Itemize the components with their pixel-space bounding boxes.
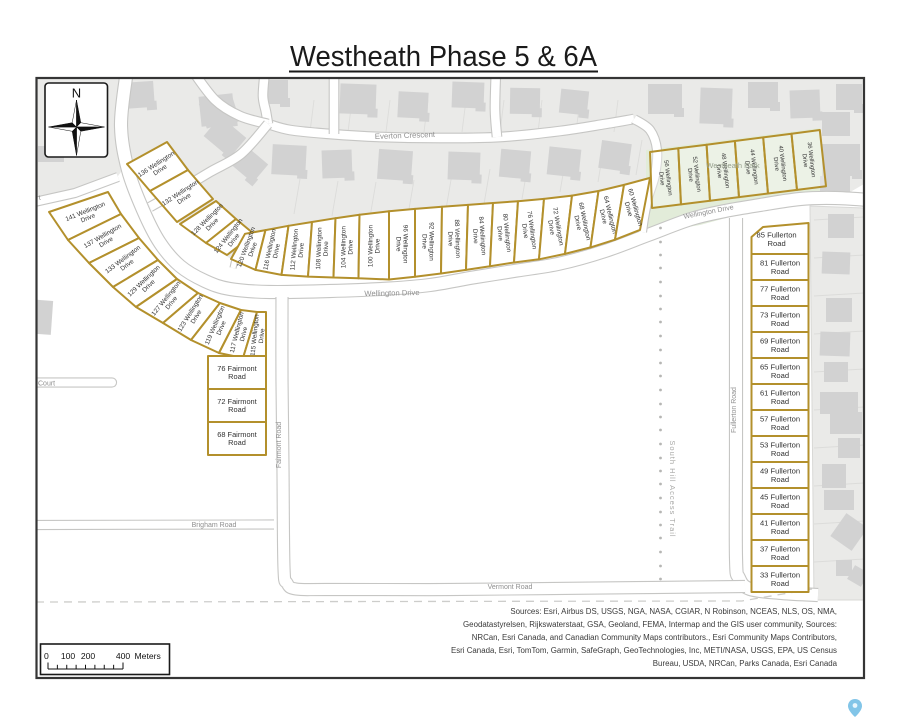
- svg-text:92 Wellington: 92 Wellington: [428, 222, 435, 261]
- svg-text:Wellington Drive: Wellington Drive: [364, 288, 419, 298]
- svg-text:Brigham Road: Brigham Road: [192, 522, 237, 529]
- svg-text:Road: Road: [771, 371, 789, 380]
- svg-text:104 Wellington: 104 Wellington: [341, 226, 348, 269]
- svg-text:Road: Road: [771, 579, 789, 588]
- svg-text:Drive: Drive: [394, 237, 401, 252]
- svg-text:Drive: Drive: [471, 229, 479, 245]
- svg-text:Road: Road: [771, 267, 789, 276]
- svg-text:Road: Road: [771, 319, 789, 328]
- svg-text:96 Wellington: 96 Wellington: [401, 225, 408, 264]
- svg-text:Sources: Esri, Airbus DS, USGS: Sources: Esri, Airbus DS, USGS, NGA, NAS…: [510, 607, 837, 616]
- svg-text:Road: Road: [771, 475, 789, 484]
- svg-text:Drive: Drive: [421, 234, 428, 249]
- svg-text:Road: Road: [771, 423, 789, 432]
- svg-text:Drive: Drive: [375, 238, 382, 253]
- svg-text:Road: Road: [771, 449, 789, 458]
- svg-text:Meters: Meters: [135, 651, 161, 661]
- svg-text:N: N: [72, 86, 81, 101]
- svg-text:Drive: Drive: [446, 231, 454, 247]
- svg-text:Road: Road: [771, 553, 789, 562]
- svg-text:Esri Canada, Esri, TomTom, Gar: Esri Canada, Esri, TomTom, Garmin, SafeG…: [451, 646, 837, 655]
- svg-text:Westheath Phase 5 & 6A: Westheath Phase 5 & 6A: [290, 41, 598, 73]
- svg-text:Road: Road: [771, 345, 789, 354]
- svg-text:Geodatastyrelsen, Rijkswaterst: Geodatastyrelsen, Rijkswaterstaat, GSA, …: [463, 620, 837, 629]
- svg-text:Bureau, USDA, NRCan, Parks Can: Bureau, USDA, NRCan, Parks Canada, Esri …: [653, 659, 838, 668]
- svg-text:Road: Road: [228, 438, 246, 447]
- svg-text:100 Wellington: 100 Wellington: [368, 224, 375, 267]
- svg-text:Road: Road: [771, 397, 789, 406]
- svg-text:South Hill Access Trail: South Hill Access Trail: [668, 440, 677, 537]
- svg-text:Road: Road: [228, 372, 246, 381]
- svg-text:Court: Court: [38, 381, 55, 388]
- svg-text:Road: Road: [228, 405, 246, 414]
- svg-text:Road: Road: [771, 501, 789, 510]
- svg-text:Vermont Road: Vermont Road: [488, 584, 533, 591]
- svg-text:400: 400: [116, 651, 131, 661]
- svg-text:Drive: Drive: [298, 242, 306, 258]
- svg-text:Drive: Drive: [323, 241, 331, 257]
- svg-text:100: 100: [61, 651, 76, 661]
- svg-text:Westheath Park: Westheath Park: [706, 161, 759, 170]
- svg-text:NRCan, Esri Canada, and Canadi: NRCan, Esri Canada, and Canadian Communi…: [472, 633, 837, 642]
- svg-text:Drive: Drive: [348, 239, 355, 254]
- svg-text:Fairmont Road: Fairmont Road: [276, 422, 283, 468]
- svg-text:Road: Road: [771, 293, 789, 302]
- svg-text:0: 0: [44, 651, 49, 661]
- svg-text:Road: Road: [771, 527, 789, 536]
- svg-text:Road: Road: [768, 239, 786, 248]
- svg-text:Fullerton Road: Fullerton Road: [731, 387, 738, 433]
- svg-text:200: 200: [81, 651, 96, 661]
